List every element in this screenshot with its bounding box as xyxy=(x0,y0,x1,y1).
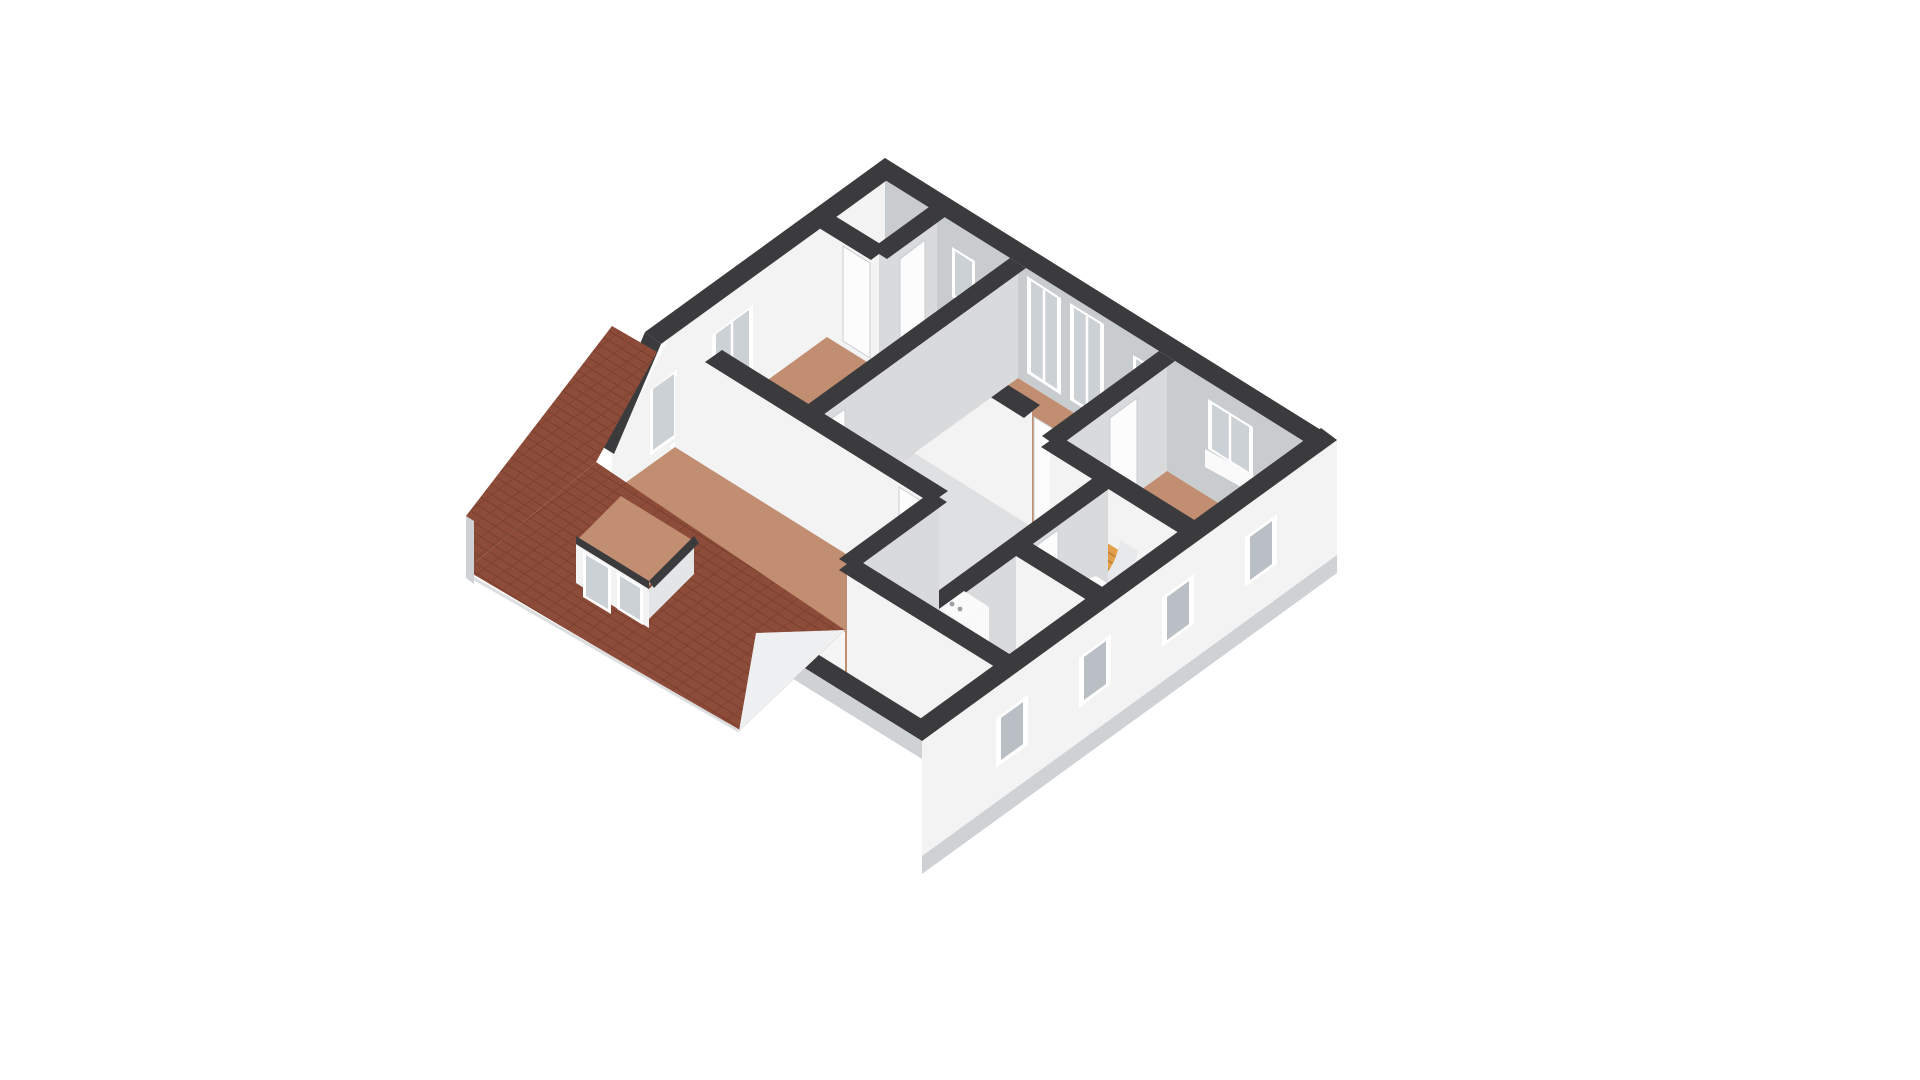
boiler-knob-a xyxy=(950,602,955,607)
floorplan-canvas xyxy=(0,0,1920,1080)
floorplan-3d-render xyxy=(0,0,1920,1080)
door-closet xyxy=(843,246,870,358)
boiler-knob-b xyxy=(958,607,963,612)
slab-edge-left xyxy=(466,516,474,584)
